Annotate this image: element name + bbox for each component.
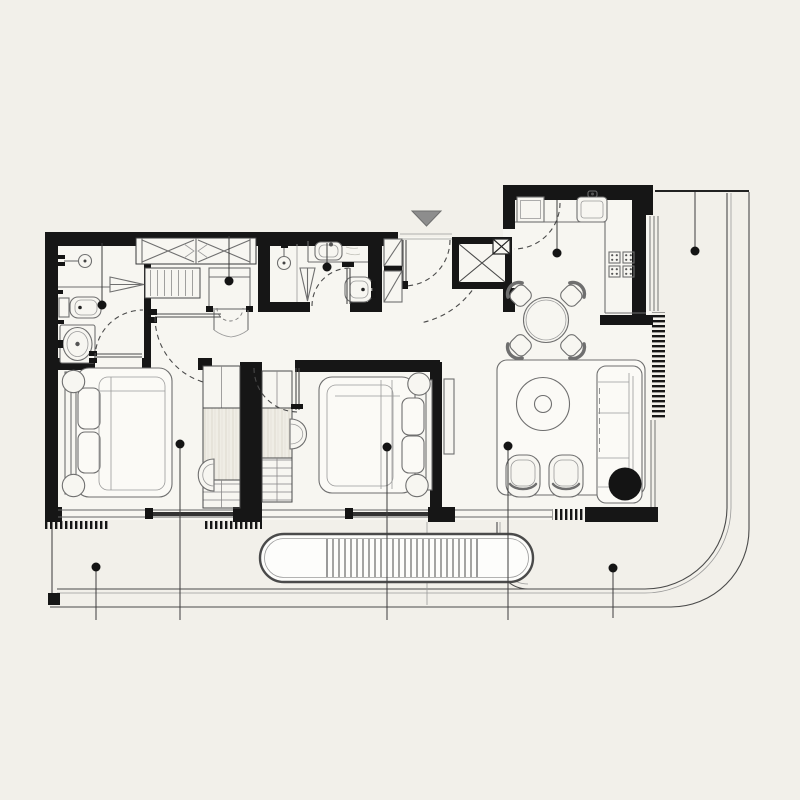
dining-table bbox=[524, 298, 569, 343]
nightstand-round bbox=[62, 370, 84, 392]
bedroom-1 bbox=[62, 366, 240, 508]
leader-dot bbox=[553, 249, 562, 258]
pillow bbox=[402, 436, 424, 473]
leader-dot bbox=[176, 440, 185, 449]
pillow bbox=[78, 432, 100, 473]
kitchen-fridge bbox=[517, 197, 544, 222]
living-east-glazing bbox=[651, 420, 655, 507]
dressing-shelf-unit bbox=[145, 268, 200, 298]
leader-dot bbox=[92, 563, 101, 572]
bedroom-2 bbox=[254, 368, 432, 502]
side-table-black-circle bbox=[609, 468, 642, 501]
leader-dot bbox=[98, 301, 107, 310]
floor-plan-drawing bbox=[0, 0, 800, 800]
tv-console bbox=[444, 379, 454, 454]
wardrobe-closet bbox=[136, 238, 256, 264]
terrace-planter bbox=[260, 534, 533, 582]
nightstand-round bbox=[406, 474, 428, 496]
nightstand-round bbox=[62, 474, 84, 496]
armchair bbox=[549, 455, 583, 497]
leader-dot bbox=[225, 277, 234, 286]
nightstand-round bbox=[408, 373, 430, 395]
entry-direction-triangle-icon bbox=[412, 211, 441, 226]
floor-plan-canvas bbox=[0, 0, 800, 800]
louver-teeth bbox=[205, 521, 262, 529]
leader-dot bbox=[383, 443, 392, 452]
leader-dot bbox=[323, 263, 332, 272]
leader-dot bbox=[504, 442, 513, 451]
bathroom-1-toilet bbox=[59, 297, 101, 318]
terrace-column bbox=[48, 593, 60, 605]
louver-teeth bbox=[45, 521, 108, 529]
armchair bbox=[506, 455, 540, 497]
desk-bedroom-1 bbox=[198, 366, 240, 508]
pillow bbox=[78, 388, 100, 429]
louver-teeth-vertical bbox=[652, 312, 665, 419]
kitchen-balcony-glazing bbox=[650, 216, 658, 311]
bathroom-1-vanity bbox=[58, 325, 95, 363]
leader-dot bbox=[691, 247, 700, 256]
leader-dot bbox=[609, 564, 618, 573]
pillow bbox=[402, 398, 424, 435]
wall-between-bedrooms bbox=[240, 362, 262, 520]
service-shaft bbox=[452, 237, 512, 289]
louver-teeth bbox=[552, 509, 586, 520]
coffee-table bbox=[517, 378, 570, 431]
wall-living-south bbox=[585, 507, 658, 522]
entry-cabinets bbox=[384, 239, 402, 302]
wall-left-exterior bbox=[45, 232, 58, 522]
